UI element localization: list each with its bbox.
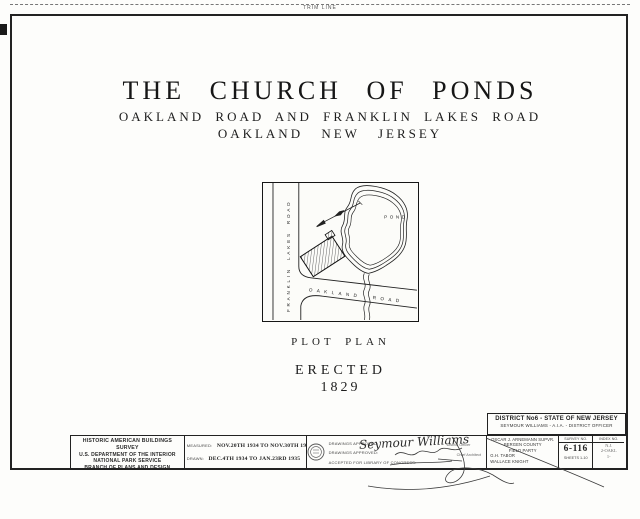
agency-line: NATIONAL PARK SERVICE bbox=[71, 458, 184, 465]
district-header-box: DISTRICT No6 - STATE OF NEW JERSEY SEYMO… bbox=[487, 413, 626, 435]
registration-mark bbox=[0, 24, 7, 35]
drawn-row: DRAWN: DEC.4TH 1934 TO JAN.23RD 1935 bbox=[187, 451, 306, 464]
district-officer: SEYMOUR WILLIAMS - A.I.A. - DISTRICT OFF… bbox=[488, 423, 625, 429]
franklin-lakes-road-label: FRANKLIN LAKES ROAD bbox=[286, 201, 291, 312]
north-arrow-icon bbox=[317, 201, 363, 227]
title-block: HISTORIC AMERICAN BUILDINGS SURVEY U.S. … bbox=[70, 435, 626, 468]
subtitle-city: OAKLAND NEW JERSEY bbox=[34, 126, 626, 142]
survey-number-box: SURVEY NO. 6-116 SHEETS 1-10 bbox=[559, 436, 593, 468]
plot-plan-map: FRANKLIN LAKES ROAD OAKLAND ROAD POND bbox=[262, 182, 419, 322]
field-party-member: WALLACE KNIGHT bbox=[487, 459, 558, 464]
agency-box: HISTORIC AMERICAN BUILDINGS SURVEY U.S. … bbox=[71, 436, 185, 468]
signature-note: District Officer bbox=[447, 443, 471, 447]
agency-line: U.S. DEPARTMENT OF THE INTERIOR bbox=[71, 452, 184, 459]
checked-row: MEASUREMENTS CHECKED: bbox=[187, 464, 306, 468]
pond-label: POND bbox=[384, 215, 407, 220]
plot-plan-drawing: FRANKLIN LAKES ROAD OAKLAND ROAD POND bbox=[263, 183, 417, 320]
sheets-count: SHEETS 1-10 bbox=[559, 455, 592, 461]
erected-year: 1829 bbox=[262, 380, 419, 396]
field-party-box: OSCAR J. ARNEMANN SUPVR. BERGEN COUNTY F… bbox=[487, 436, 559, 468]
agency-line: HISTORIC AMERICAN BUILDINGS SURVEY bbox=[71, 438, 184, 452]
index-number-box: INDEX NO. N.J. 2-OAKL 1- bbox=[593, 436, 624, 468]
signature-note: Chief Architect bbox=[457, 453, 481, 457]
approvals-box: DRAWINGS APPROVED: DRAWINGS APPROVED: AC… bbox=[307, 436, 488, 468]
index-number-label: INDEX NO. bbox=[593, 436, 624, 443]
district-lower-box: OSCAR J. ARNEMANN SUPVR. BERGEN COUNTY F… bbox=[487, 436, 626, 468]
index-line: 1- bbox=[593, 454, 624, 459]
sheet-border: THE CHURCH OF PONDS OAKLAND ROAD AND FRA… bbox=[10, 14, 628, 470]
agency-line: BRANCH OF PLANS AND DESIGN bbox=[71, 465, 184, 468]
drawn-value: DEC.4TH 1934 TO JAN.23RD 1935 bbox=[209, 456, 301, 462]
drawn-label: DRAWN: bbox=[187, 456, 204, 461]
erected-label: ERECTED bbox=[262, 363, 419, 379]
plot-plan-caption: PLOT PLAN bbox=[262, 336, 419, 348]
measured-value: NOV.20TH 1934 TO NOV.30TH 1934 bbox=[217, 443, 307, 449]
survey-number: 6-116 bbox=[559, 443, 592, 455]
oakland-road-label: OAKLAND ROAD bbox=[309, 287, 402, 303]
trim-line-label: TRIM LINE bbox=[297, 5, 343, 11]
church-building bbox=[298, 230, 348, 276]
survey-number-label: SURVEY NO. bbox=[559, 436, 592, 443]
accepted-label: ACCEPTED FOR LIBRARY OF CONGRESS: bbox=[329, 460, 417, 465]
district-title: DISTRICT No6 - STATE OF NEW JERSEY bbox=[488, 416, 625, 423]
subtitle-address: OAKLAND ROAD AND FRANKLIN LAKES ROAD bbox=[34, 109, 626, 125]
page-title: THE CHURCH OF PONDS bbox=[34, 76, 626, 106]
trim-line: TRIM LINE bbox=[10, 4, 630, 5]
drawing-sheet: TRIM LINE THE CHURCH OF PONDS OAKLAND RO… bbox=[0, 0, 640, 519]
dates-box: MEASURED: NOV.20TH 1934 TO NOV.30TH 1934… bbox=[185, 436, 307, 468]
